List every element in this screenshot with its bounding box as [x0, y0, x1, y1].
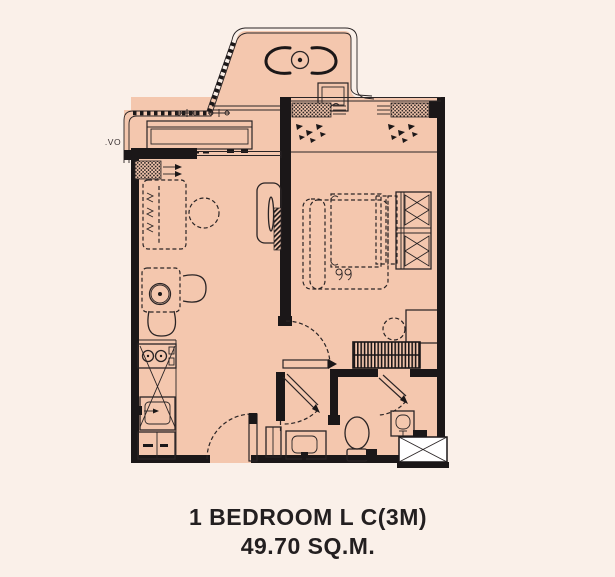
fan-coil-unit	[135, 161, 161, 179]
wall-right	[437, 97, 445, 463]
floor-plan: .VO	[0, 0, 615, 577]
window-hatch-right	[391, 103, 429, 117]
wall-left	[131, 148, 139, 463]
wall-top-left	[131, 148, 197, 159]
plan-area: 49.70 SQ.M.	[241, 533, 376, 559]
wall-bathroom-top	[330, 369, 378, 377]
service-shaft	[397, 437, 449, 468]
window-hatch-left	[292, 103, 331, 117]
ledge-label: .VO	[105, 137, 121, 147]
plan-title: 1 BEDROOM L C(3M)	[189, 504, 427, 530]
wall-bathroom-inner	[330, 377, 338, 417]
wall-bathroom-left	[276, 372, 285, 421]
floor-plan-page: .VO	[0, 0, 615, 577]
wall-tv	[274, 208, 281, 250]
balcony-table-center	[298, 58, 302, 62]
faucet	[136, 406, 142, 415]
